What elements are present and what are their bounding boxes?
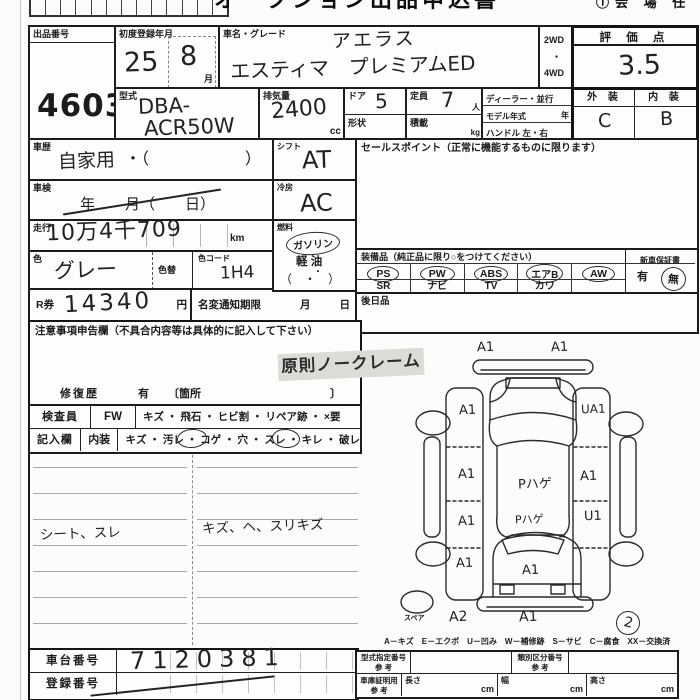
capacity-unit: 人 xyxy=(472,104,480,112)
inspection-label: 車検 xyxy=(33,184,51,193)
warranty-header: 新車保証書 xyxy=(625,250,695,264)
handle-row: ハンドル 左・右 xyxy=(483,123,573,139)
model-code-label: 型式 xyxy=(119,92,137,101)
r-ticket-value: 14340 xyxy=(63,290,152,318)
first-registration-month: 8 xyxy=(180,43,198,71)
wheel-rear-right xyxy=(609,542,643,566)
cooling-value: AC xyxy=(300,190,334,215)
chassis-row: 車台番号 7120381 xyxy=(30,650,357,673)
corner-note-text: ①会 場 任 xyxy=(596,0,700,9)
equipment-row2: SR ナビ TV カワ xyxy=(357,279,625,293)
first-registration-label: 初度登録年月 xyxy=(119,30,173,39)
inspector-row-fw: 検査員 FW キズ ・ 飛石 ・ ヒビ割 ・ リペア跡 ・ ×要 xyxy=(30,406,360,429)
history-value: 自家用 xyxy=(58,151,116,172)
right-side-rail xyxy=(620,437,636,537)
r-ticket-label: R券 xyxy=(36,300,54,311)
sheet-title-text: オークション出品申込書 xyxy=(214,0,559,11)
exterior-label: 外 装 xyxy=(574,90,635,106)
model-year-unit: 年 xyxy=(561,112,569,120)
color-label: 色 xyxy=(33,255,42,264)
scan-edge-line xyxy=(20,0,21,700)
wheel-front-right xyxy=(609,412,643,436)
equipment-row1: PS PW ABS エアB AW xyxy=(357,263,625,280)
grid-cell xyxy=(61,0,76,15)
capacity-top: 定員 7 人 xyxy=(407,89,483,115)
front-bumper-shape xyxy=(473,360,593,374)
inspector-items1: キズ ・ 飛石 ・ ヒビ割 ・ リペア跡 ・ ×要 xyxy=(136,406,360,428)
displacement-unit: cc xyxy=(330,127,341,137)
drive-dot: ・ xyxy=(552,53,561,62)
drive-2wd: 2WD xyxy=(544,36,564,45)
lot-number-box: 出品番号 4603 xyxy=(28,25,118,142)
mark-left-front-fender: A1 xyxy=(459,404,477,418)
cooling-label: 冷房 xyxy=(277,184,293,192)
mileage-unit: km xyxy=(230,234,244,244)
reference-row1: 型式指定番号 参 考 類別区分番号 参 考 xyxy=(357,652,677,674)
shift-box: シフト AT xyxy=(272,138,359,183)
drive-type-box: 2WD ・ 4WD xyxy=(538,25,575,91)
grid-cell xyxy=(122,0,137,15)
type-number-ref: 参 考 xyxy=(357,664,410,672)
class-number-value-cell xyxy=(569,652,677,673)
history-box: 車歴 自家用 ・（ ） xyxy=(28,138,276,183)
vehicle-name-handwritten: エスティマ プレミアムED xyxy=(230,53,476,82)
vehicle-name-box: 車名・グレード アエラス エスティマ プレミアムED xyxy=(218,25,542,91)
month-unit: 月 xyxy=(204,75,213,84)
wheel-front-left xyxy=(416,411,450,435)
mark-front-bumper-left: A1 xyxy=(477,341,495,355)
grid-cell xyxy=(76,0,91,15)
mark-right-front-door: A1 xyxy=(580,470,598,484)
grid-cell xyxy=(198,0,213,15)
doors-box: ドア 5 形状 xyxy=(343,87,409,142)
name-change-day: 日 xyxy=(340,300,351,311)
type-number-cell: 型式指定番号 参 考 xyxy=(357,652,411,673)
color-change-divider xyxy=(152,252,153,290)
spare-tire-label: スペア xyxy=(404,615,425,622)
mark-rear-bumper-left: A2 xyxy=(449,610,468,625)
model-year-label: モデル年式 xyxy=(486,113,526,121)
length-label: 長さ xyxy=(405,677,421,685)
later-goods-label: 後日品 xyxy=(361,297,390,307)
vehicle-grade-handwritten: アエラス xyxy=(332,30,416,52)
ei-header: 外 装 内 装 xyxy=(574,90,696,107)
later-goods-box: 後日品 xyxy=(355,292,699,334)
damage-legend: A－キズ E－エクボ U－凹み W－補修跡 S－サビ C－腐食 XX－交換済 xyxy=(384,638,670,646)
score-box: 評 価 点 3.5 xyxy=(571,25,699,93)
garage-label: 車庫証明用 xyxy=(357,677,401,685)
doors-value: 5 xyxy=(375,91,388,111)
warranty-area: 新車保証書 有 無 xyxy=(625,250,695,294)
garage-ref: 参 考 xyxy=(357,687,401,695)
fuel-paren: （ ・ ） xyxy=(280,273,340,285)
reference-table: 型式指定番号 参 考 類別区分番号 参 考 車庫証明用 参 考 長さ cm 幅 … xyxy=(355,650,679,699)
r-ticket-unit: 円 xyxy=(177,300,188,311)
class-number-ref: 参 考 xyxy=(512,664,568,672)
grid-cell xyxy=(152,0,167,15)
drive-4wd: 4WD xyxy=(544,69,564,78)
right-side-panel xyxy=(573,388,610,600)
diagram-page-number: 2 xyxy=(621,611,635,635)
interior-label: 内 装 xyxy=(635,90,696,106)
wheel-rear-left xyxy=(416,542,450,566)
grid-cell xyxy=(31,0,46,15)
warranty-yes: 有 xyxy=(637,272,648,283)
spare-tire-shape xyxy=(401,591,433,613)
model-code-box: 型式 DBA- ACR50W xyxy=(114,87,262,142)
length-cell: 長さ cm xyxy=(402,674,498,696)
capacity-value: 7 xyxy=(441,90,455,111)
ei-divider xyxy=(634,90,635,141)
history-label: 車歴 xyxy=(33,143,51,152)
color-code-label: 色コード xyxy=(198,255,230,263)
height-unit: cm xyxy=(661,685,674,694)
repair-history-option: 有 xyxy=(138,389,149,400)
interior-value: B xyxy=(660,110,674,129)
inspector-row-label1: 検査員 xyxy=(30,406,91,428)
displacement-value: 2400 xyxy=(270,97,328,124)
mileage-box: 走行 km 10万4千709 xyxy=(28,219,276,254)
class-number-label: 類別区分番号 xyxy=(512,654,568,662)
capacity-box: 定員 7 人 積載 kg xyxy=(405,87,485,142)
color-change-label: 色替 xyxy=(158,266,176,275)
mark-roof-rear: Pハゲ xyxy=(515,514,544,526)
width-cell: 幅 cm xyxy=(498,674,587,696)
dealer-label: ディーラー・並行 xyxy=(486,95,553,104)
grid-cell xyxy=(46,0,61,15)
color-value: グレー xyxy=(54,259,118,282)
fuel-box: 燃料 ガソリン 軽 油 ・ （ ・ ） xyxy=(272,219,359,292)
inspection-box: 車検 年 月（ 日） xyxy=(28,179,276,223)
doors-top: ドア 5 xyxy=(345,89,407,115)
type-number-value-cell xyxy=(411,652,512,673)
front-body-shape xyxy=(490,378,576,420)
top-grid-strip xyxy=(29,0,229,17)
width-label: 幅 xyxy=(501,677,509,685)
reference-row2: 車庫証明用 参 考 長さ cm 幅 cm 高さ cm xyxy=(357,674,677,696)
name-change-box: 名変通知期限 月 日 xyxy=(190,288,359,324)
mark-front-bumper-right: A1 xyxy=(551,341,569,355)
warranty-label: 新車保証書 xyxy=(640,254,680,267)
left-side-rail xyxy=(424,437,440,537)
history-paren: ・（ ） xyxy=(125,152,261,168)
mark-left-rear-quarter: A1 xyxy=(456,557,474,571)
corner-note-clipped: ①会 場 任 xyxy=(596,0,700,12)
dealer-row: ディーラー・並行 xyxy=(483,89,573,106)
shape-label: 形状 xyxy=(348,119,366,128)
mileage-value: 10万4千709 xyxy=(46,219,183,246)
width-unit: cm xyxy=(570,685,583,694)
load-unit: kg xyxy=(471,129,480,137)
dealer-box: ディーラー・並行 モデル年式 年 ハンドル 左・右 xyxy=(481,87,575,142)
mark-left-front-door: A1 xyxy=(458,468,476,482)
plate-row: 登録番号 xyxy=(30,673,357,695)
cooling-box: 冷房 AC xyxy=(272,179,359,223)
color-code-divider xyxy=(192,252,193,290)
displacement-box: 排気量 2400 cc xyxy=(258,87,347,142)
chassis-plate-box: 車台番号 7120381 登録番号 xyxy=(28,648,359,700)
length-unit: cm xyxy=(481,685,494,694)
equipment-cell: AW xyxy=(572,264,625,280)
class-number-cell: 類別区分番号 参 考 xyxy=(512,652,569,673)
repair-location-open: 〔箇所 xyxy=(168,389,201,400)
chassis-label: 車台番号 xyxy=(30,650,117,672)
repair-history-label: 修復歴 xyxy=(60,389,99,400)
color-box: 色 グレー 色替 色コード 1H4 xyxy=(28,250,276,292)
plate-label: 登録番号 xyxy=(30,673,117,695)
exterior-value: C xyxy=(598,112,612,131)
equipment-cell: ABS xyxy=(465,264,519,280)
grid-cell xyxy=(183,0,198,15)
windshield-shape xyxy=(489,413,576,447)
score-value: 3.5 xyxy=(618,51,662,79)
lot-label: 出品番号 xyxy=(33,30,69,39)
notes-ruled-right xyxy=(197,442,358,634)
mark-right-rear-door: U1 xyxy=(584,510,602,524)
note-left-handwritten: シート、スレ xyxy=(40,527,121,543)
grid-cell xyxy=(167,0,182,15)
mark-rear-bumper-center: A1 xyxy=(519,610,538,625)
load-label: 積載 xyxy=(410,119,428,128)
score-header: 評 価 点 xyxy=(574,28,696,46)
mark-right-front-fender: UA1 xyxy=(581,403,606,416)
color-code-value: 1H4 xyxy=(220,264,255,282)
inspector-cat1: FW xyxy=(91,406,136,428)
equipment-cell: PS xyxy=(357,264,411,280)
model-code-line2: ACR50W xyxy=(144,115,235,139)
first-registration-year: 25 xyxy=(124,48,159,76)
doors-label: ドア xyxy=(348,92,366,101)
sales-point-label: セールスポイント（正常に機能するものに限ります） xyxy=(361,144,601,154)
exterior-interior-box: 外 装 内 装 C B xyxy=(571,87,699,144)
shift-label: シフト xyxy=(277,143,301,151)
type-number-label: 型式指定番号 xyxy=(357,654,410,662)
lot-label-strip: 出品番号 xyxy=(30,27,116,43)
height-cell: 高さ cm xyxy=(587,674,677,696)
notice-label: 注意事項申告欄（不具合内容等は具体的に記入して下さい） xyxy=(35,326,318,337)
mark-left-rear-door: A1 xyxy=(458,515,476,529)
auction-sheet: オークション出品申込書 ①会 場 任 出品番号 4603 初度登録年月 月 25… xyxy=(0,0,700,700)
grid-cell xyxy=(92,0,107,15)
model-year-row: モデル年式 年 xyxy=(483,106,573,123)
sheet-title-clipped: オークション出品申込書 xyxy=(214,0,559,12)
name-change-label: 名変通知期限 xyxy=(198,300,261,311)
diagram-page-circle: 2 xyxy=(616,611,640,635)
score-label: 評 価 点 xyxy=(600,32,671,44)
grid-cell xyxy=(107,0,122,15)
mark-rear-gate: A1 xyxy=(522,564,540,578)
handle-label: ハンドル 左・右 xyxy=(486,129,548,138)
warranty-no-circled: 無 xyxy=(660,266,687,292)
sales-point-box: セールスポイント（正常に機能するものに限ります） xyxy=(355,138,699,252)
notes-left-border xyxy=(28,450,30,648)
equipment-cell: PW xyxy=(411,264,465,280)
first-registration-box: 初度登録年月 月 25 8 xyxy=(114,25,222,91)
repair-location-close: 〕 xyxy=(330,389,341,400)
fuel-label: 燃料 xyxy=(277,224,293,232)
grid-cell xyxy=(137,0,152,15)
capacity-label: 定員 xyxy=(410,92,428,101)
chassis-value: 7120381 xyxy=(130,645,286,673)
equipment-label: 装備品（純正品に限り○をつけてください） xyxy=(361,253,537,262)
equipment-cell: エアB xyxy=(518,264,572,280)
equipment-box: 装備品（純正品に限り○をつけてください） PS PW ABS エアB AW SR… xyxy=(355,248,699,296)
notes-column-divider xyxy=(192,455,193,645)
name-change-month: 月 xyxy=(300,300,311,311)
garage-cell: 車庫証明用 参 考 xyxy=(357,674,402,696)
r-ticket-box: R券 14340 円 xyxy=(28,288,194,324)
shift-value: AT xyxy=(302,147,332,172)
height-label: 高さ xyxy=(590,677,606,685)
mark-hood-center: Pハゲ xyxy=(518,477,552,491)
fuel-gasoline-circled: ガソリン xyxy=(285,230,340,257)
vehicle-name-label: 車名・グレード xyxy=(223,30,286,39)
